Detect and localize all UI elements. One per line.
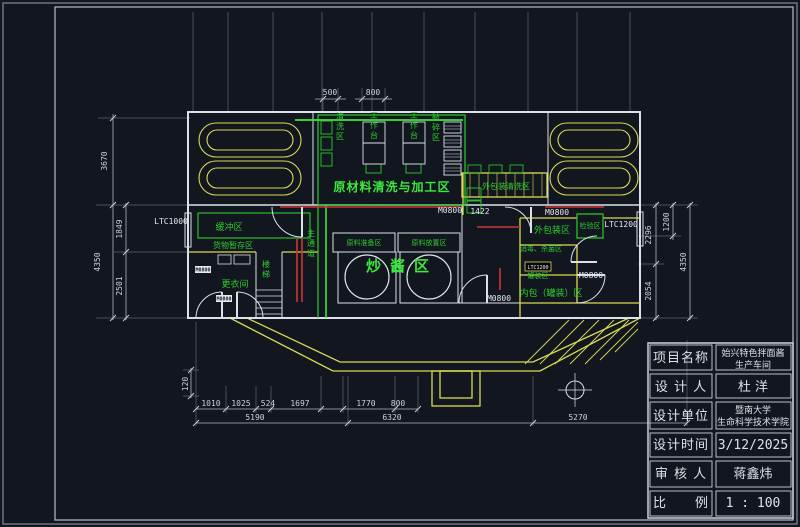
dim-1025: 1025 <box>231 399 250 408</box>
label-buffer-area: 缓冲区 <box>215 221 242 233</box>
tag-ltc1200-pass: LTC1200 <box>527 265 548 271</box>
tag-m0800-4: M0800 <box>579 271 603 280</box>
dim-1849: 1849 <box>115 219 124 238</box>
tag-1422: 1422 <box>470 207 489 216</box>
titleblock-value-project-line1: 始兴特色拌面酱 <box>721 347 784 359</box>
tag-ltc1200-window: LTC1200 <box>604 220 638 229</box>
label-material-place: 原料放置区 <box>412 238 447 247</box>
label-material-prep: 原料准备区 <box>347 238 382 247</box>
window-right <box>637 212 643 246</box>
label-sterilize: 消毒、杀菌区 <box>520 244 562 253</box>
door-arc <box>459 275 487 303</box>
dim-1770: 1770 <box>356 399 375 408</box>
label-goods-storage: 货物暂存区 <box>213 240 253 250</box>
dim-3670: 3670 <box>100 151 109 170</box>
titleblock-label-date: 设计时间 <box>653 438 709 453</box>
label-inspection: 检验区 <box>580 221 601 230</box>
changing-room-fixtures <box>218 255 250 264</box>
floor-plan-drawing: 原材料清洗与加工区 清洗区 工作台 工作台 破碎区 外包装清洗区 缓冲区 货物暂… <box>0 0 800 527</box>
tag-m0800-1: M0800 <box>438 206 462 215</box>
tag-m0800-6: M0800 <box>216 297 231 303</box>
dim-1200: 1200 <box>662 212 671 231</box>
titleblock-label-project: 项目名称 <box>653 350 709 366</box>
dim-5270: 5270 <box>568 413 587 422</box>
label-workbench-1: 工作台 <box>370 111 379 141</box>
titleblock-value-scale: 1 : 100 <box>726 496 781 511</box>
dim-1697: 1697 <box>290 399 309 408</box>
titleblock-value-unit-line2: 生命科学技术学院 <box>717 416 789 428</box>
titleblock-value-unit-line1: 暨南大学 <box>735 404 771 416</box>
label-filling: 罐装区 <box>528 271 549 280</box>
label-wash-area: 清洗区 <box>336 111 345 142</box>
titleblock-label-unit: 设计单位 <box>653 409 709 424</box>
label-fry-area: 炒酱区 <box>366 257 438 275</box>
dimension-texts: 500 800 3670 4350 1849 2501 2296 1200 43… <box>93 88 688 422</box>
canopy-outline <box>230 318 640 406</box>
title-block: 项目名称 始兴特色拌面酱 生产车间 设 计 人 杜 洋 设计单位 暨南大学 生命… <box>648 343 793 518</box>
door-arc <box>272 207 302 237</box>
dim-500: 500 <box>323 88 338 97</box>
crusher-units <box>444 122 461 175</box>
label-outer-pack-wash: 外包装清洗区 <box>482 181 530 191</box>
survey-crosshair <box>558 373 592 407</box>
titleblock-label-reviewer: 审 核 人 <box>655 467 707 482</box>
label-corridor: 主通道 <box>307 228 316 259</box>
dim-2054: 2054 <box>644 281 653 300</box>
titleblock-value-reviewer: 蒋鑫炜 <box>733 466 772 482</box>
red-lines <box>280 207 604 302</box>
dim-1010: 1010 <box>201 399 220 408</box>
label-changing-room: 更衣间 <box>221 278 248 290</box>
dim-5190: 5190 <box>245 413 264 422</box>
titleblock-value-date: 3/12/2025 <box>718 438 788 453</box>
dim-800-top: 800 <box>366 88 381 97</box>
cad-sheet: 原材料清洗与加工区 清洗区 工作台 工作台 破碎区 外包装清洗区 缓冲区 货物暂… <box>0 0 800 527</box>
tag-m0800-5: M0800 <box>195 268 210 274</box>
titleblock-label-designer: 设 计 人 <box>655 380 707 395</box>
stair-treads <box>256 290 282 314</box>
titleblock-label-scale: 比 例 <box>653 496 709 511</box>
tag-ltc1000: LTC1000 <box>154 217 188 226</box>
label-outer-pack: 外包装区 <box>534 224 570 236</box>
tag-m0800-2: M0800 <box>545 208 569 217</box>
door-arc <box>571 236 597 262</box>
door-arc <box>505 207 531 233</box>
dim-4350-right: 4350 <box>679 252 688 271</box>
dim-120: 120 <box>181 377 190 392</box>
label-workbench-2: 工作台 <box>410 111 419 141</box>
dim-524: 524 <box>261 399 276 408</box>
dim-4350-left: 4350 <box>93 252 102 271</box>
label-inner-pack: 内包（罐装）区 <box>519 287 582 299</box>
dim-2296: 2296 <box>644 225 653 244</box>
titleblock-value-designer: 杜 洋 <box>738 380 768 395</box>
dim-6320: 6320 <box>382 413 401 422</box>
titleblock-value-project-line2: 生产车间 <box>735 359 771 371</box>
label-crush-area: 破碎区 <box>432 112 441 143</box>
label-processing-area: 原材料清洗与加工区 <box>333 179 450 194</box>
label-stairs: 楼梯 <box>262 259 271 280</box>
dim-800-bottom: 800 <box>391 399 406 408</box>
dim-2501: 2501 <box>115 276 124 295</box>
tag-m0800-3: M0800 <box>487 294 511 303</box>
